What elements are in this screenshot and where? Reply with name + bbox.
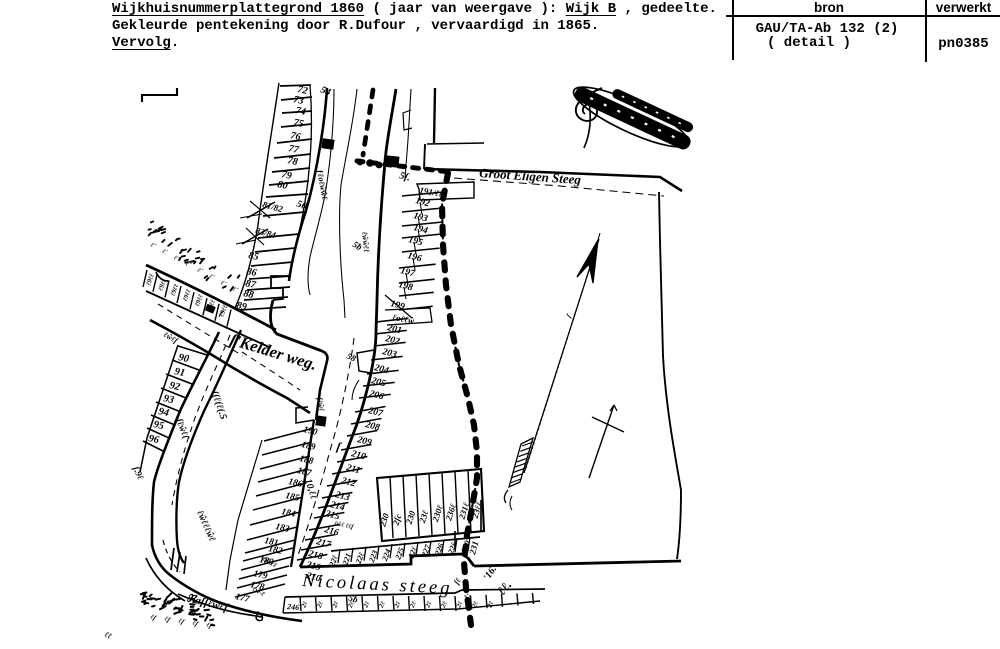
svg-text:192: 192 <box>414 195 431 209</box>
svg-text:ℓſ: ℓſ <box>176 616 186 626</box>
svg-text:ℓ´: ℓ´ <box>160 247 169 256</box>
svg-text:ſℓ: ſℓ <box>452 576 463 586</box>
svg-text:78: 78 <box>286 155 298 168</box>
svg-text:198: 198 <box>397 279 414 293</box>
svg-text:22ℓ: 22ℓ <box>353 551 366 566</box>
svg-text:ℓℓ: ℓℓ <box>103 630 114 641</box>
svg-text:2ℓ: 2ℓ <box>486 600 495 610</box>
svg-text:23ℓ: 23ℓ <box>417 509 431 525</box>
svg-text:246: 246 <box>286 602 300 612</box>
svg-text:ℓſ: ℓſ <box>148 612 158 622</box>
svg-text:Groot Eligen Steeg: Groot Eligen Steeg <box>479 165 582 187</box>
svg-text:204: 204 <box>372 362 390 376</box>
svg-text:230: 230 <box>403 509 417 526</box>
svg-text:74: 74 <box>294 105 306 118</box>
svg-text:ſ.9ℓ: ſ.9ℓ <box>131 465 146 482</box>
svg-text:54: 54 <box>319 84 332 98</box>
svg-text:190: 190 <box>302 425 318 438</box>
svg-text:77: 77 <box>287 143 300 156</box>
svg-text:ſ: ſ <box>565 312 573 319</box>
svg-text:ℓ´: ℓ´ <box>148 241 157 250</box>
svg-text:210: 210 <box>349 448 367 462</box>
svg-text:94: 94 <box>157 406 170 419</box>
svg-text:76: 76 <box>289 130 302 143</box>
svg-text:188: 188 <box>298 454 314 467</box>
svg-text:182: 182 <box>267 544 283 557</box>
svg-text:186: 186 <box>287 477 303 490</box>
svg-text:ℓ´: ℓ´ <box>230 285 239 294</box>
svg-text:10,ℓℓ: 10,ℓℓ <box>302 478 319 501</box>
svg-text:5ſ.: 5ſ. <box>398 170 411 183</box>
svg-text:ℓŵℓſ: ℓŵℓſ <box>162 330 181 346</box>
svg-text:93: 93 <box>162 393 175 406</box>
svg-text:ℓŵℓℓℓŵℓ: ℓŵℓℓℓŵℓ <box>194 509 217 543</box>
svg-text:75: 75 <box>292 117 304 130</box>
svg-text:ſ'Kelder weg.: ſ'Kelder weg. <box>228 330 319 374</box>
svg-text:230ℓ: 230ℓ <box>430 503 445 523</box>
svg-text:ℓ´: ℓ´ <box>195 266 204 275</box>
svg-text:187: 187 <box>296 466 312 479</box>
svg-text:236ℓ: 236ℓ <box>443 502 458 522</box>
svg-text:ℓſ: ℓſ <box>162 614 172 624</box>
svg-text:ℓ´: ℓ´ <box>207 273 216 282</box>
svg-text:((ℓ(ℓ(.5: ((ℓ(ℓ(.5 <box>209 390 229 421</box>
svg-text:58: 58 <box>345 351 358 364</box>
svg-text:81/82: 81/82 <box>261 199 284 214</box>
svg-text:194: 194 <box>412 222 429 236</box>
svg-text:ℓſ: ℓſ <box>190 618 200 628</box>
svg-text:95: 95 <box>152 419 165 432</box>
svg-text:189: 189 <box>300 440 316 453</box>
svg-text:205: 205 <box>369 375 387 389</box>
svg-text:ℓ9ℓℓ: ℓ9ℓℓ <box>182 288 193 303</box>
svg-text:ſ: ſ <box>335 439 342 454</box>
svg-text:184: 184 <box>280 507 296 520</box>
svg-text:177: 177 <box>234 592 250 605</box>
svg-text:206: 206 <box>367 388 385 402</box>
svg-text:185: 185 <box>284 491 300 504</box>
svg-text:83/84: 83/84 <box>254 225 277 240</box>
svg-text:ℓ9ℓℓ: ℓ9ℓℓ <box>194 294 205 309</box>
svg-text:196: 196 <box>406 250 423 264</box>
svg-text:195: 195 <box>407 234 424 248</box>
svg-text:ℓℓ.: ℓℓ. <box>494 577 515 598</box>
svg-text:80: 80 <box>276 179 288 192</box>
